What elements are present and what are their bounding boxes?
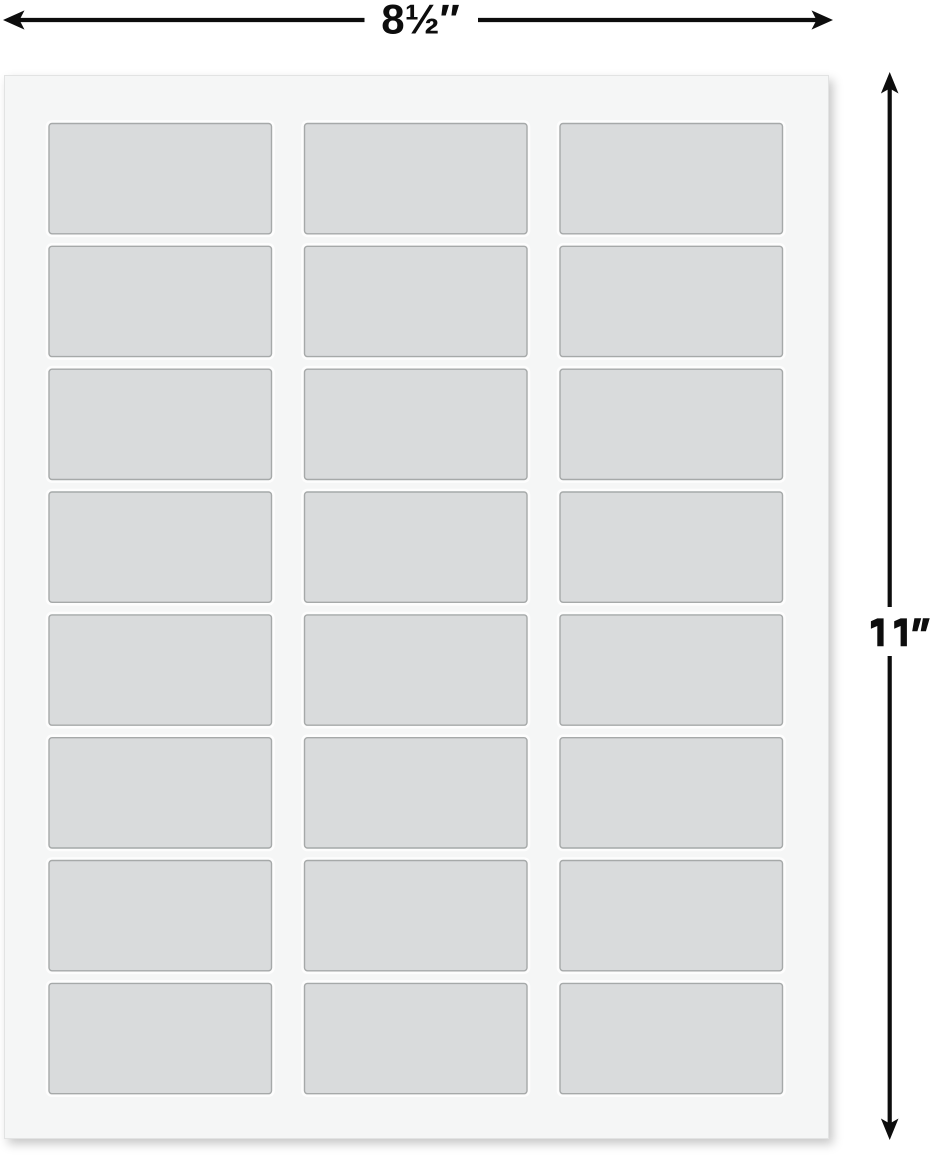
svg-text:8½″: 8½″ [381,0,460,43]
